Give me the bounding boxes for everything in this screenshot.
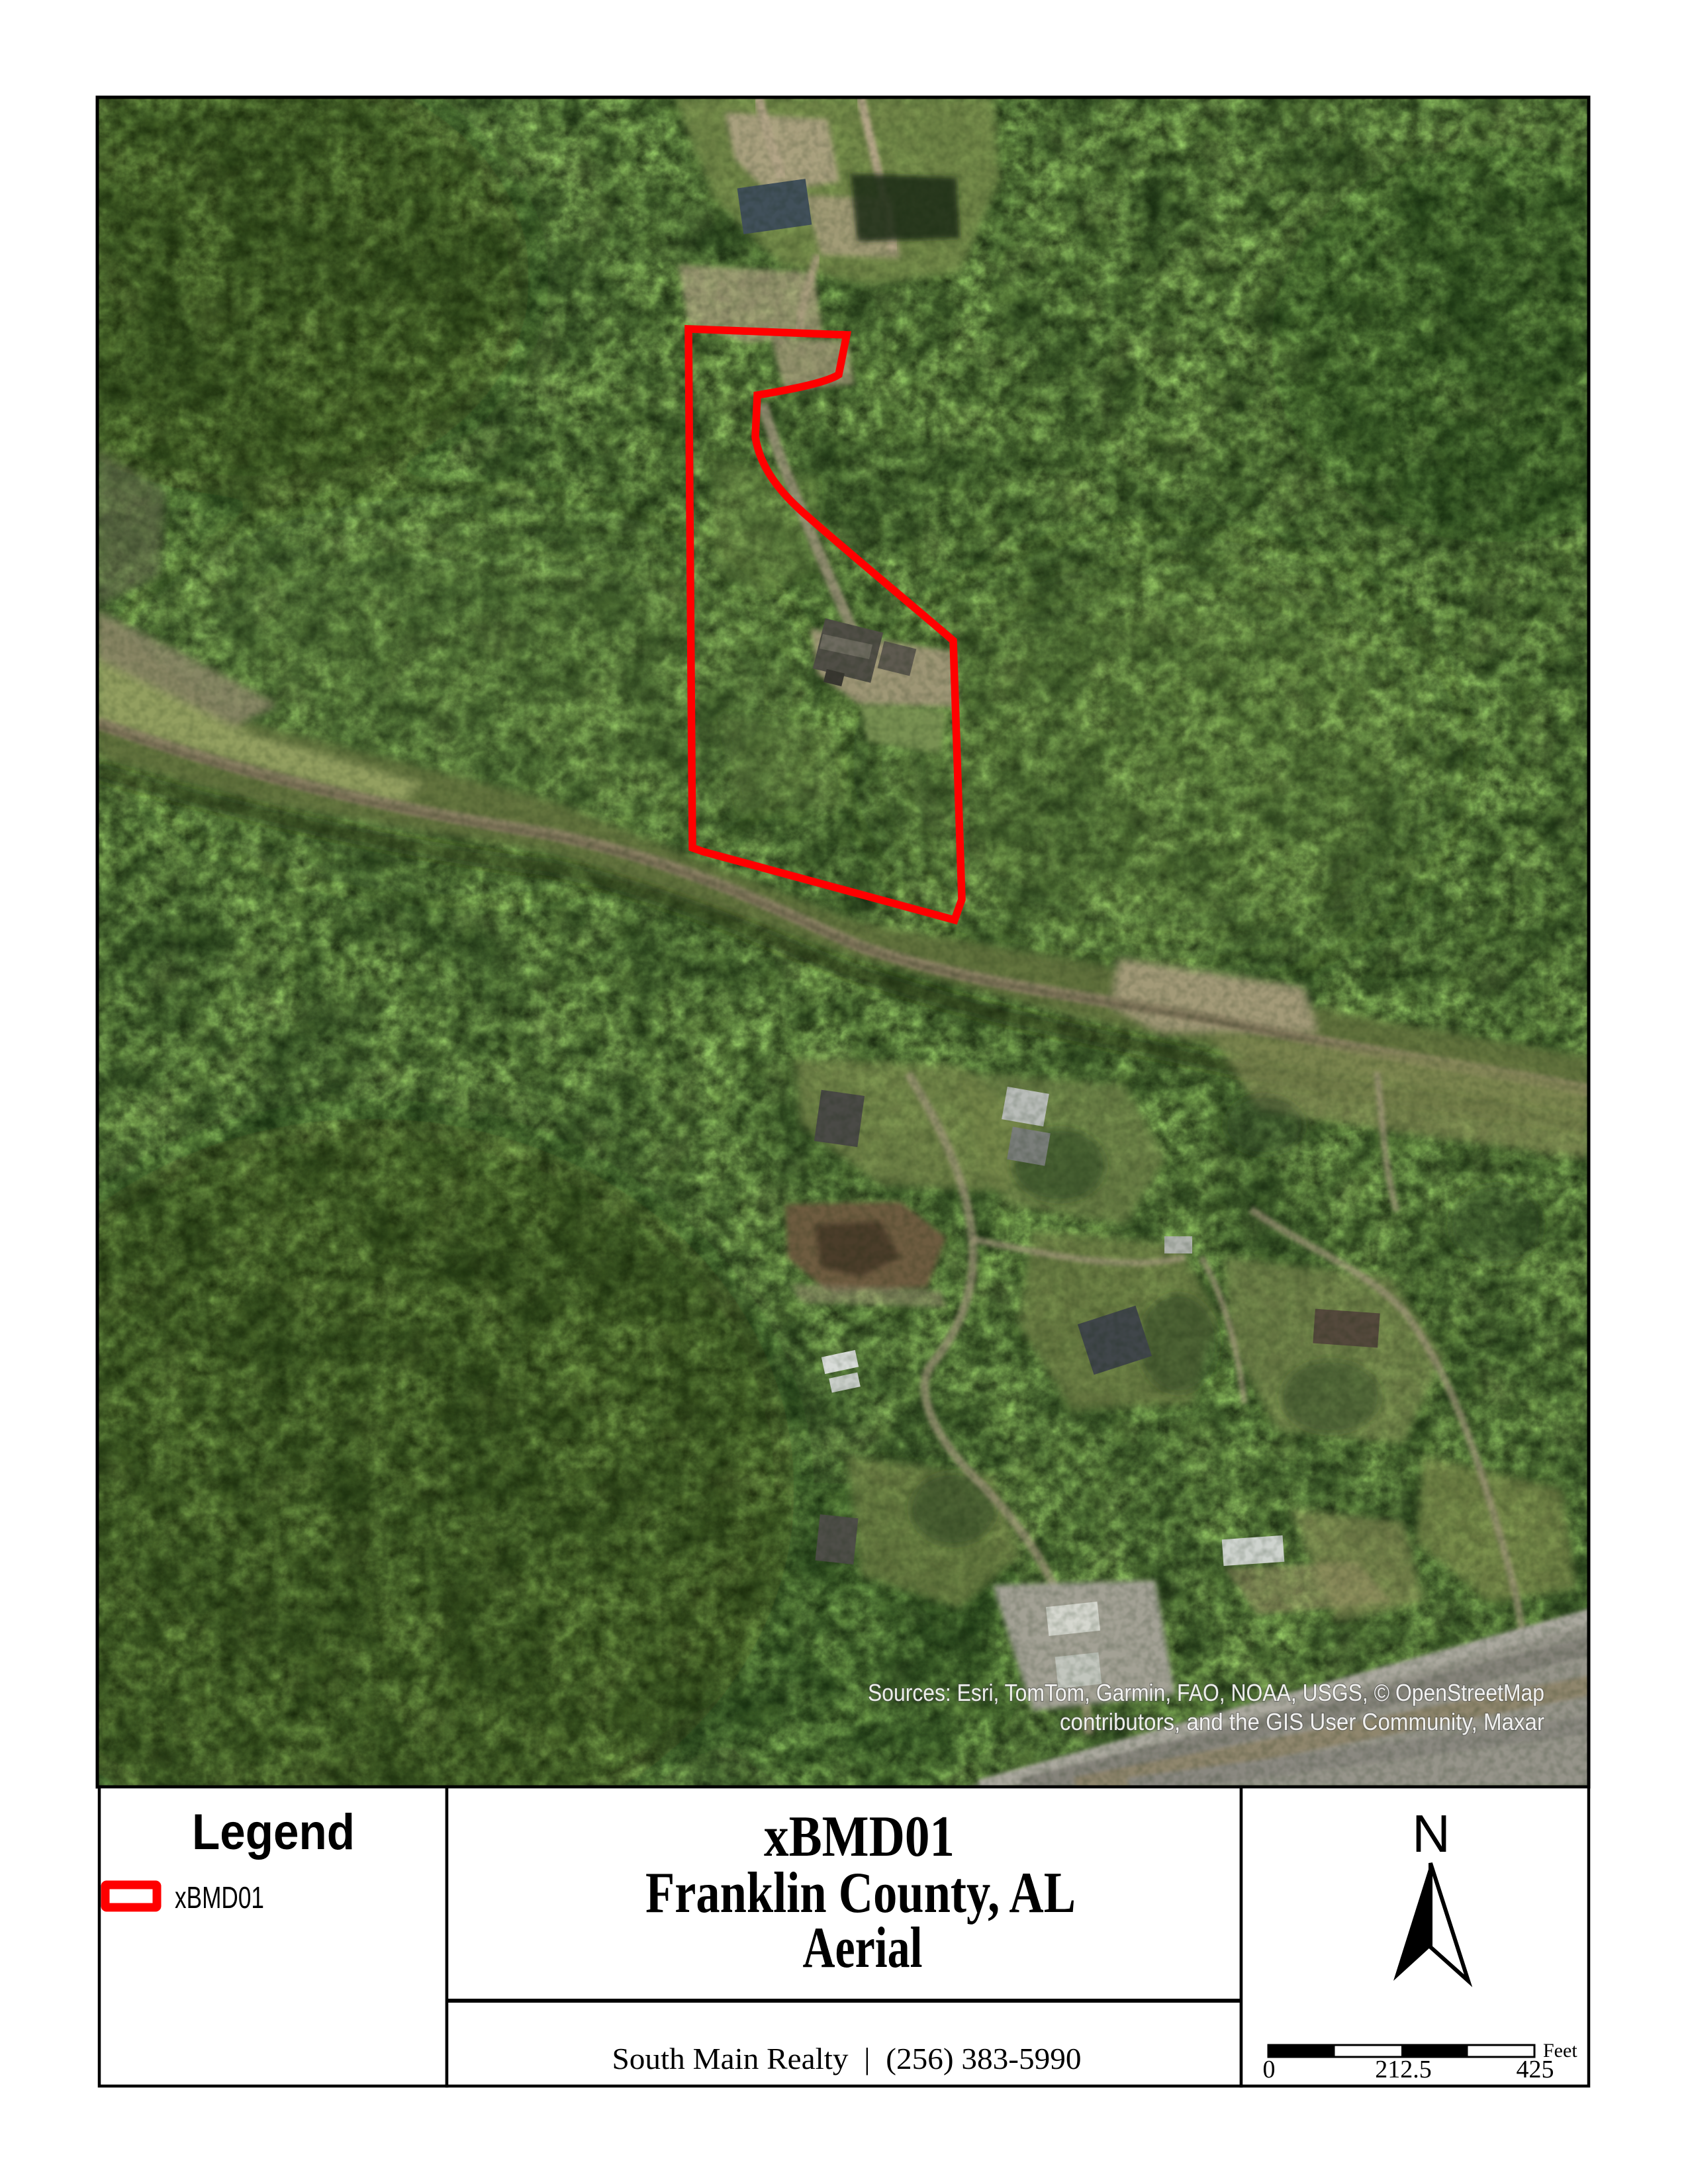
svg-text:contributors, and the GIS User: contributors, and the GIS User Community…: [1060, 1708, 1544, 1735]
svg-text:Aerial: Aerial: [803, 1916, 923, 1980]
svg-text:N: N: [1412, 1804, 1450, 1863]
svg-text:Feet: Feet: [1543, 2040, 1577, 2062]
svg-text:0: 0: [1263, 2056, 1276, 2083]
svg-text:South Main Realty | (256) 38: South Main Realty | (256) 383-5990: [612, 2042, 1082, 2075]
svg-text:xBMD01: xBMD01: [764, 1805, 955, 1869]
svg-text:212.5: 212.5: [1375, 2056, 1432, 2083]
svg-text:xBMD01: xBMD01: [175, 1880, 264, 1915]
svg-text:Sources: Esri, TomTom, Garmin,: Sources: Esri, TomTom, Garmin, FAO, NOAA…: [868, 1679, 1544, 1706]
svg-text:Legend: Legend: [192, 1804, 355, 1860]
